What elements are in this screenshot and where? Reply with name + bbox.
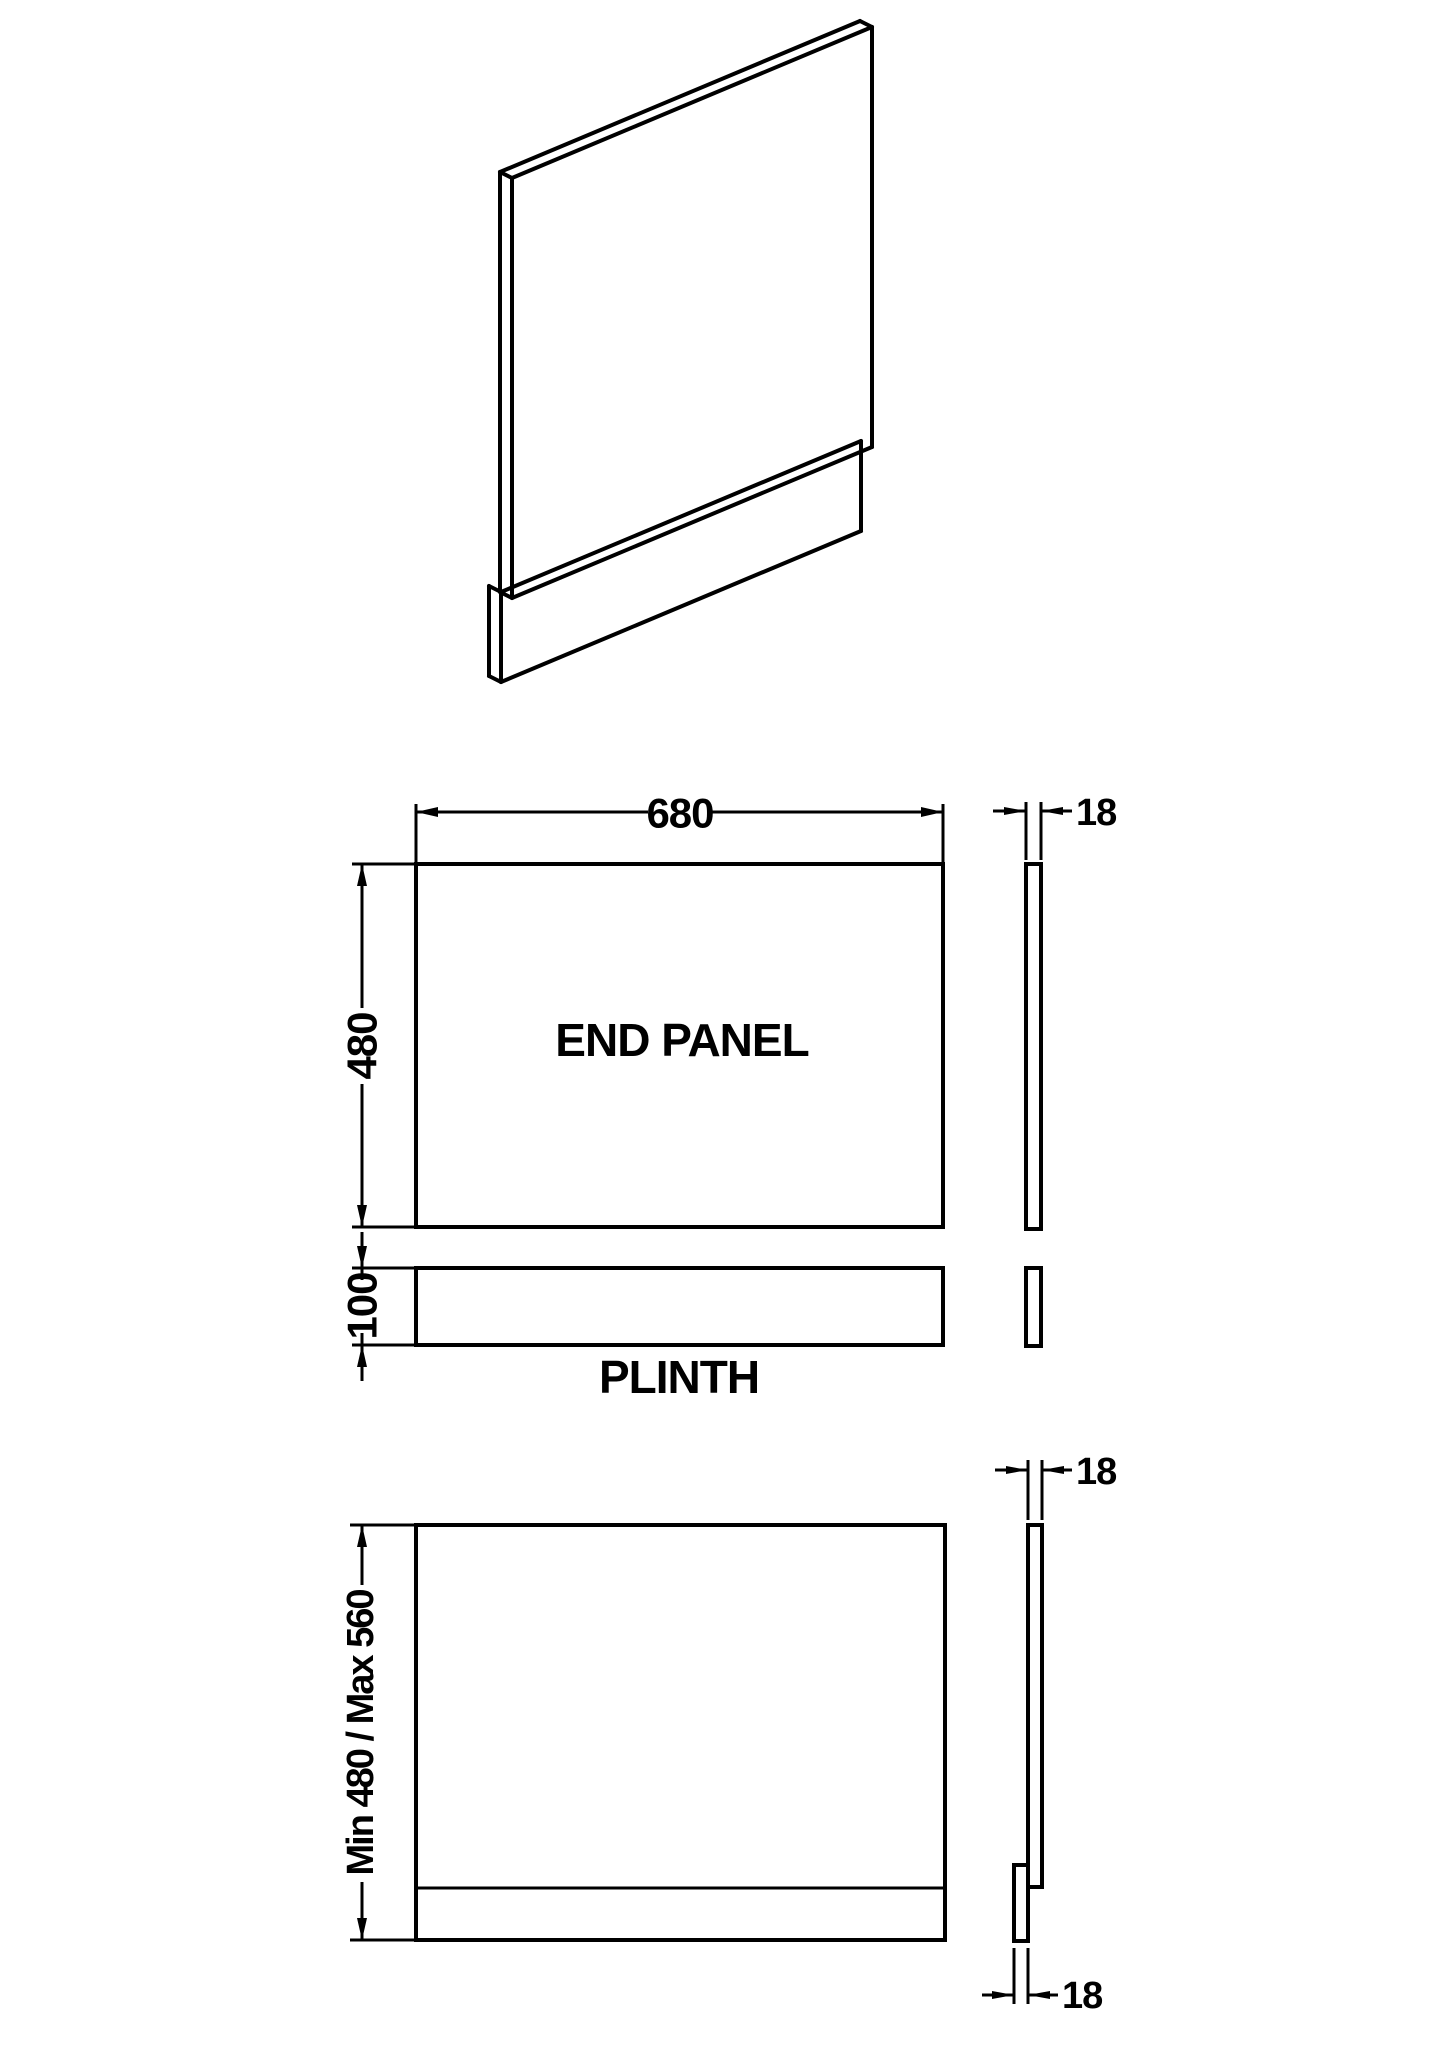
end-panel-side-view — [1026, 864, 1041, 1229]
dim-bottom-plinth-thickness-label: 18 — [1062, 1975, 1102, 2017]
technical-drawing-canvas: END PANEL 680 18 480 PLINTH — [0, 0, 1445, 2045]
dim-bottom-panel-thickness-label: 18 — [1076, 1451, 1116, 1493]
arrowhead-left — [416, 807, 438, 817]
plinth-front-view — [416, 1268, 943, 1345]
plinth-top-edge — [501, 441, 861, 592]
dim-overall-height-group: Min 480 / Max 560 — [340, 1525, 414, 1940]
arrowhead-right — [1041, 807, 1063, 815]
end-panel-label: END PANEL — [555, 1014, 808, 1066]
arrowhead-top — [357, 1525, 367, 1547]
technical-drawing-page: END PANEL 680 18 480 PLINTH — [0, 0, 1445, 2045]
dim-panel-thickness-group: 18 — [993, 792, 1116, 860]
isometric-panel — [500, 21, 872, 598]
plinth-bottom-edge — [501, 531, 861, 682]
dim-panel-height-group: 480 — [339, 864, 415, 1227]
plinth-side-view-group — [1026, 1268, 1041, 1346]
dim-panel-width-label: 680 — [646, 790, 713, 837]
arrowhead-bottom — [357, 1345, 367, 1367]
dim-panel-height-label: 480 — [339, 1012, 386, 1079]
dim-plinth-height-group: 100 — [339, 1232, 415, 1381]
bath-panel-front-view — [416, 1525, 945, 1940]
dim-panel-width-group: 680 — [416, 790, 943, 863]
dim-plinth-height-label: 100 — [339, 1272, 386, 1339]
dim-bottom-plinth-thickness-group: 18 — [982, 1948, 1102, 2017]
plinth-side-view — [1026, 1268, 1041, 1346]
panel-back-top-edge — [500, 21, 860, 172]
bath-panel-front-view-group — [416, 1525, 945, 1940]
arrowhead-top — [357, 1246, 367, 1268]
dim-bottom-panel-thickness-group: 18 — [995, 1451, 1116, 1520]
arrowhead-right — [1042, 1466, 1064, 1474]
arrowhead-left — [1004, 807, 1026, 815]
arrowhead-right — [1028, 1991, 1050, 1999]
arrowhead-bottom — [357, 1918, 367, 1940]
end-panel-front-view-group: END PANEL — [416, 864, 943, 1227]
bath-panel-side-view — [1028, 1525, 1042, 1887]
dim-panel-thickness-label: 18 — [1076, 792, 1116, 834]
isometric-view — [489, 21, 872, 682]
panel-top-right-connector — [860, 21, 872, 27]
arrowhead-top — [357, 864, 367, 886]
panel-bottom-edge — [512, 447, 872, 598]
arrowhead-right — [921, 807, 943, 817]
dim-overall-height-label: Min 480 / Max 560 — [340, 1590, 382, 1876]
arrowhead-left — [1006, 1466, 1028, 1474]
bath-panel-side-view-group — [1014, 1525, 1042, 1941]
bath-plinth-side-view — [1014, 1865, 1028, 1941]
end-panel-side-view-group — [1026, 864, 1041, 1229]
plinth-label: PLINTH — [599, 1351, 759, 1403]
arrowhead-left — [992, 1991, 1014, 1999]
arrowhead-bottom — [357, 1205, 367, 1227]
panel-front-top-edge — [512, 27, 872, 178]
plinth-front-view-group: PLINTH — [416, 1268, 943, 1403]
